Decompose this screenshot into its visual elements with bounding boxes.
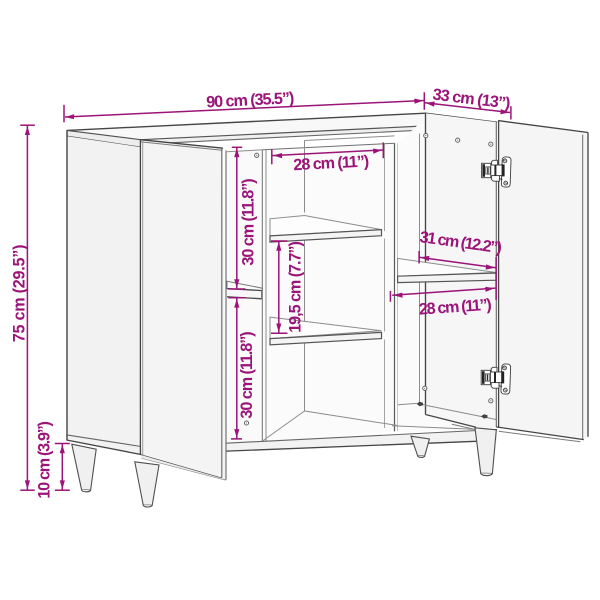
svg-text:10 cm (3.9”): 10 cm (3.9”) [36, 422, 54, 499]
svg-text:75 cm (29.5”): 75 cm (29.5”) [11, 245, 29, 343]
svg-text:19,5 cm (7.7”): 19,5 cm (7.7”) [286, 242, 304, 333]
svg-text:30 cm (11.8”): 30 cm (11.8”) [238, 332, 256, 419]
svg-text:28 cm (11”): 28 cm (11”) [293, 152, 369, 174]
svg-text:30 cm (11.8”): 30 cm (11.8”) [239, 179, 257, 266]
